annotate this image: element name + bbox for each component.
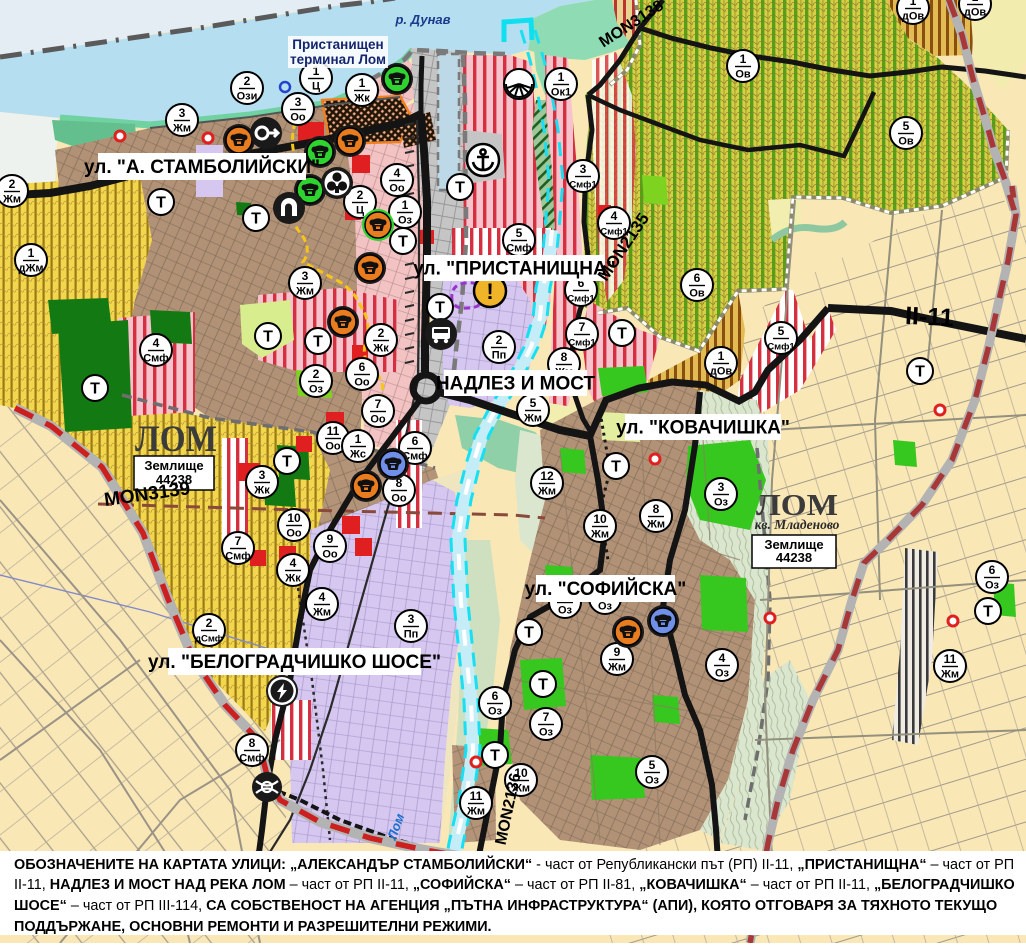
svg-text:1: 1	[28, 246, 35, 260]
svg-text:Жм: Жм	[2, 194, 21, 206]
svg-text:Оо: Оо	[370, 414, 386, 426]
svg-text:ул. "А. СТАМБОЛИЙСКИ": ул. "А. СТАМБОЛИЙСКИ"	[84, 156, 320, 178]
svg-text:р. Дунав: р. Дунав	[394, 12, 450, 27]
svg-text:Оз: Оз	[598, 601, 613, 613]
svg-text:Ц: Ц	[312, 81, 320, 93]
svg-text:Смф1: Смф1	[569, 180, 597, 191]
svg-text:Оо: Оо	[391, 493, 407, 505]
svg-text:Жм: Жм	[295, 286, 314, 298]
svg-text:6: 6	[694, 271, 701, 285]
svg-text:дОв: дОв	[710, 366, 733, 378]
svg-text:Смф: Смф	[506, 243, 532, 255]
svg-text:2: 2	[313, 367, 320, 381]
svg-text:3: 3	[302, 269, 309, 283]
svg-text:T: T	[435, 300, 445, 317]
svg-text:Смф: Смф	[143, 353, 169, 365]
svg-text:4: 4	[153, 336, 160, 350]
svg-text:Землище: Землище	[144, 458, 203, 473]
svg-text:7: 7	[579, 320, 586, 334]
svg-text:Оз: Оз	[398, 215, 413, 227]
svg-text:8: 8	[249, 736, 256, 750]
svg-text:Оз: Оз	[715, 668, 730, 680]
svg-text:1: 1	[355, 432, 362, 446]
svg-text:Жк: Жк	[284, 573, 301, 585]
svg-text:3: 3	[179, 106, 186, 120]
svg-text:6: 6	[989, 563, 996, 577]
svg-text:T: T	[263, 329, 273, 346]
svg-text:Ози: Ози	[237, 91, 258, 103]
svg-text:ул. "ПРИСТАНИЩНА": ул. "ПРИСТАНИЩНА"	[413, 258, 616, 279]
svg-text:T: T	[617, 326, 627, 343]
svg-text:12: 12	[540, 469, 554, 483]
svg-text:T: T	[611, 459, 621, 476]
svg-text:Жк: Жк	[353, 93, 370, 105]
svg-text:11: 11	[944, 652, 957, 666]
svg-text:3: 3	[580, 162, 587, 176]
svg-text:Смф: Смф	[225, 551, 251, 563]
svg-text:Ов: Ов	[689, 288, 705, 300]
svg-text:Пп: Пп	[492, 350, 507, 362]
svg-text:5: 5	[530, 396, 537, 410]
svg-text:ШОСЕ“ – част от РП III-114, СА: ШОСЕ“ – част от РП III-114, СА СОБСТВЕНО…	[14, 898, 997, 914]
svg-text:Жм: Жм	[940, 669, 959, 681]
svg-text:Оо: Оо	[389, 183, 405, 195]
svg-text:Жм: Жм	[607, 662, 626, 674]
svg-text:Оз: Оз	[985, 580, 1000, 592]
svg-text:5: 5	[903, 119, 910, 133]
svg-text:5: 5	[649, 758, 656, 772]
svg-text:2: 2	[244, 74, 251, 88]
svg-text:Оз: Оз	[488, 706, 503, 718]
svg-text:4: 4	[290, 556, 297, 570]
svg-text:7: 7	[375, 397, 382, 411]
svg-text:T: T	[983, 604, 993, 621]
svg-text:T: T	[490, 748, 500, 765]
svg-text:терминал Лом: терминал Лом	[290, 52, 386, 67]
svg-text:1: 1	[359, 76, 366, 90]
svg-text:ПОДДЪРЖАНЕ, ОСНОВНИ РЕМОНТИ И: ПОДДЪРЖАНЕ, ОСНОВНИ РЕМОНТИ И РАЗРЕШИТЕЛ…	[14, 919, 492, 935]
svg-text:4: 4	[394, 166, 401, 180]
svg-text:6: 6	[359, 360, 366, 374]
svg-text:1: 1	[972, 0, 979, 4]
svg-text:1: 1	[740, 52, 747, 66]
svg-text:Оз: Оз	[558, 605, 573, 617]
svg-text:8: 8	[561, 350, 568, 364]
svg-text:4: 4	[719, 651, 726, 665]
svg-text:1: 1	[718, 349, 725, 363]
svg-text:Оо: Оо	[354, 377, 370, 389]
svg-text:3: 3	[259, 468, 266, 482]
svg-text:Оо: Оо	[322, 549, 338, 561]
svg-text:Оо: Оо	[290, 112, 306, 124]
svg-text:2: 2	[496, 333, 503, 347]
svg-text:10: 10	[287, 511, 301, 525]
svg-text:T: T	[398, 234, 408, 251]
svg-text:Смф: Смф	[239, 753, 265, 765]
svg-text:6: 6	[492, 689, 499, 703]
svg-text:НАДЛЕЗ И МОСТ: НАДЛЕЗ И МОСТ	[436, 373, 596, 394]
svg-text:Пристанищен: Пристанищен	[292, 37, 383, 52]
svg-text:Жм: Жм	[537, 486, 556, 498]
svg-text:Жм: Жм	[312, 607, 331, 619]
svg-text:!: !	[486, 279, 493, 304]
svg-text:Жм: Жм	[466, 806, 485, 818]
svg-text:4: 4	[319, 590, 326, 604]
svg-text:4: 4	[611, 209, 618, 223]
svg-text:2: 2	[206, 616, 213, 630]
svg-text:II-11: II-11	[904, 302, 954, 333]
svg-text:2: 2	[378, 326, 385, 340]
svg-text:T: T	[524, 625, 534, 642]
svg-text:1: 1	[402, 198, 409, 212]
svg-text:Жм: Жм	[590, 529, 609, 541]
svg-text:Ц: Ц	[356, 205, 364, 217]
svg-text:ЛОМ: ЛОМ	[135, 419, 217, 460]
svg-text:кв. Младеново: кв. Младеново	[755, 517, 840, 532]
svg-text:T: T	[915, 364, 925, 381]
svg-text:7: 7	[235, 534, 242, 548]
svg-text:7: 7	[543, 710, 550, 724]
svg-text:5: 5	[778, 324, 785, 338]
svg-text:6: 6	[412, 434, 419, 448]
svg-text:II-11, НАДЛЕЗ И МОСТ НАД РЕКА: II-11, НАДЛЕЗ И МОСТ НАД РЕКА ЛОМ – част…	[14, 875, 1015, 893]
svg-text:Смф1: Смф1	[568, 338, 596, 349]
svg-text:ул. "СОФИЙСКА": ул. "СОФИЙСКА"	[525, 578, 687, 600]
svg-text:5: 5	[516, 226, 523, 240]
svg-text:Ов: Ов	[735, 69, 751, 81]
svg-text:T: T	[455, 180, 465, 197]
svg-text:2: 2	[357, 188, 364, 202]
svg-text:3: 3	[295, 95, 302, 109]
svg-text:Жм: Жм	[172, 123, 191, 135]
svg-text:Оз: Оз	[714, 497, 729, 509]
svg-text:Ов: Ов	[898, 136, 914, 148]
svg-text:9: 9	[327, 532, 334, 546]
svg-text:Ок1: Ок1	[551, 87, 571, 99]
svg-text:11: 11	[327, 424, 340, 438]
svg-text:Оо: Оо	[325, 441, 341, 453]
svg-text:ОБОЗНАЧЕНИТЕ НА КАРТАТА УЛИЦИ:: ОБОЗНАЧЕНИТЕ НА КАРТАТА УЛИЦИ: „АЛЕКСАНД…	[14, 855, 1014, 873]
svg-text:Оз: Оз	[309, 384, 324, 396]
svg-text:дСмф: дСмф	[195, 634, 223, 645]
svg-text:Жм: Жм	[646, 519, 665, 531]
svg-text:ул. "КОВАЧИШКА": ул. "КОВАЧИШКА"	[616, 417, 790, 438]
svg-text:3: 3	[718, 480, 725, 494]
svg-text:Смф1: Смф1	[567, 294, 595, 305]
svg-text:Оз: Оз	[645, 775, 660, 787]
svg-text:Жк: Жк	[372, 343, 389, 355]
svg-text:Оо: Оо	[286, 528, 302, 540]
svg-text:1: 1	[558, 70, 565, 84]
svg-text:T: T	[538, 677, 548, 694]
svg-text:ул. "БЕЛОГРАДЧИШКО ШОСЕ": ул. "БЕЛОГРАДЧИШКО ШОСЕ"	[148, 652, 441, 673]
svg-text:3: 3	[408, 612, 415, 626]
svg-text:T: T	[251, 211, 261, 228]
svg-text:T: T	[156, 195, 166, 212]
svg-text:8: 8	[653, 502, 660, 516]
svg-text:1: 1	[910, 0, 917, 8]
svg-text:дОв: дОв	[902, 11, 925, 23]
svg-text:Смф1: Смф1	[767, 342, 795, 353]
svg-text:Жс: Жс	[349, 449, 366, 461]
svg-text:44238: 44238	[776, 550, 812, 565]
svg-text:дЖм: дЖм	[18, 263, 43, 275]
svg-text:T: T	[313, 334, 323, 351]
svg-text:11: 11	[470, 789, 483, 803]
svg-text:Жм: Жм	[523, 413, 542, 425]
svg-text:Пп: Пп	[404, 629, 419, 641]
svg-text:9: 9	[614, 645, 621, 659]
svg-text:T: T	[282, 454, 292, 471]
svg-text:2: 2	[9, 177, 16, 191]
svg-text:10: 10	[593, 512, 607, 526]
svg-text:T: T	[90, 381, 100, 398]
svg-text:Жк: Жк	[253, 485, 270, 497]
svg-text:Оз: Оз	[539, 727, 554, 739]
svg-text:дОв: дОв	[964, 7, 987, 19]
